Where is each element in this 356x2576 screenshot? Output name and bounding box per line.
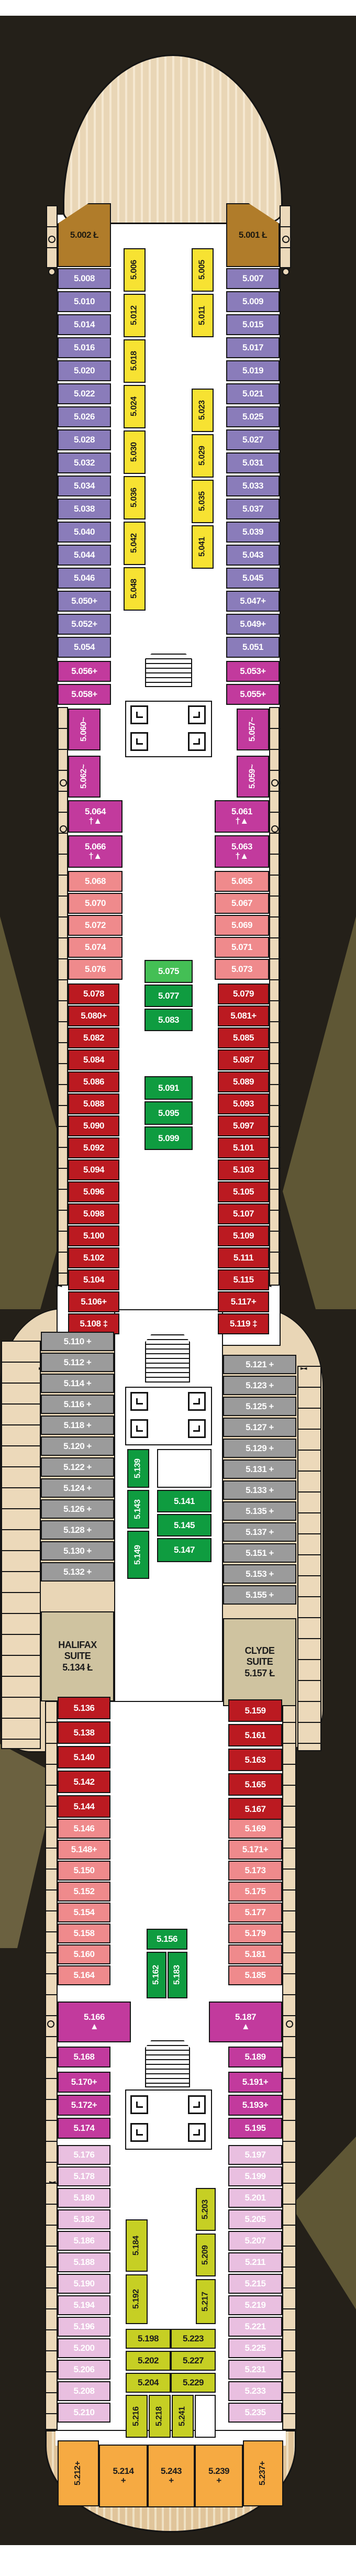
fire-zone-marker: ►◄ xyxy=(55,1283,60,1289)
cabin-5.210[interactable]: 5.210 xyxy=(58,2403,110,2423)
cabin-5.217[interactable]: 5.217 xyxy=(196,2279,216,2324)
cabin-5.091[interactable]: 5.091 xyxy=(144,1076,193,1100)
cabin-5.076[interactable]: 5.076 xyxy=(68,959,123,980)
elevator-lobby xyxy=(125,701,212,757)
cabin-5.124 +[interactable]: 5.124 + xyxy=(41,1478,114,1498)
cabin-5.180[interactable]: 5.180 xyxy=(58,2188,110,2208)
cabin-5.025[interactable]: 5.025 xyxy=(226,406,280,427)
stairs[interactable] xyxy=(145,2040,190,2087)
cabin-5.088[interactable]: 5.088 xyxy=(68,1093,119,1114)
cabin-5.229[interactable]: 5.229 xyxy=(171,2373,216,2393)
cabin-5.126 +[interactable]: 5.126 + xyxy=(41,1499,114,1519)
cabin-5.007[interactable]: 5.007 xyxy=(226,268,280,289)
cabin-5.042[interactable]: 5.042 xyxy=(124,522,146,565)
cabin-5.177[interactable]: 5.177 xyxy=(228,1903,282,1922)
suite-CLYDE[interactable]: CLYDE SUITE 5.157 Ł xyxy=(223,1618,296,1706)
cabin-5.172+[interactable]: 5.172+ xyxy=(58,2095,110,2116)
cabin-5.102[interactable]: 5.102 xyxy=(68,1247,119,1268)
deck-fitting xyxy=(282,268,290,275)
cabin-5.185[interactable]: 5.185 xyxy=(228,1965,282,1985)
cabin-5.069[interactable]: 5.069 xyxy=(215,915,269,936)
cabin-5.243[interactable]: 5.243 + xyxy=(148,2445,195,2507)
cabin-5.140[interactable]: 5.140 xyxy=(58,1746,110,1768)
cabin-5.150[interactable]: 5.150 xyxy=(58,1861,110,1881)
cabin-5.097[interactable]: 5.097 xyxy=(218,1115,269,1136)
cabin-5.201[interactable]: 5.201 xyxy=(228,2188,282,2208)
cabin-5.158[interactable]: 5.158 xyxy=(58,1923,110,1943)
cabin-5.019[interactable]: 5.019 xyxy=(226,360,280,381)
cabin-5.216[interactable]: 5.216 xyxy=(126,2395,148,2438)
elevator-icon[interactable] xyxy=(188,1419,206,1438)
cabin-5.188[interactable]: 5.188 xyxy=(58,2252,110,2272)
cabin-5.079[interactable]: 5.079 xyxy=(218,983,269,1004)
cabin-5.173[interactable]: 5.173 xyxy=(228,1861,282,1881)
cabin-5.121 +[interactable]: 5.121 + xyxy=(223,1355,296,1374)
elevator-icon[interactable] xyxy=(130,2123,148,2142)
cabin-5.111[interactable]: 5.111 xyxy=(218,1247,269,1268)
cabin-5.008[interactable]: 5.008 xyxy=(58,268,111,289)
cabin-5.023[interactable]: 5.023 xyxy=(192,389,214,432)
cabin-5.125 +[interactable]: 5.125 + xyxy=(223,1397,296,1416)
cabin-5.067[interactable]: 5.067 xyxy=(215,893,269,914)
cabin-5.202[interactable]: 5.202 xyxy=(126,2351,171,2371)
cabin-5.061[interactable]: 5.061 †▲ xyxy=(215,800,269,833)
cabin-5.094[interactable]: 5.094 xyxy=(68,1159,119,1180)
cabin-5.231[interactable]: 5.231 xyxy=(228,2360,282,2380)
cabin-5.095[interactable]: 5.095 xyxy=(144,1101,193,1125)
cabin-5.099[interactable]: 5.099 xyxy=(144,1126,193,1150)
cabin-5.191+[interactable]: 5.191+ xyxy=(228,2072,282,2093)
cabin-5.049+[interactable]: 5.049+ xyxy=(226,614,280,635)
cabin-5.162[interactable]: 5.162 xyxy=(147,1952,166,1998)
cabin-5.059~[interactable]: 5.059~ xyxy=(237,756,269,798)
cabin-5.073[interactable]: 5.073 xyxy=(215,959,269,980)
cabin-5.109[interactable]: 5.109 xyxy=(218,1225,269,1246)
cabin-5.233[interactable]: 5.233 xyxy=(228,2381,282,2401)
cabin-5.047+[interactable]: 5.047+ xyxy=(226,591,280,612)
deck-plan-page: ►◄ ►◄ ►◄ ►◄ ►◄ ►◄ 5.002 Ł5.001 Ł5.0065.0… xyxy=(0,0,356,2576)
elevator-lobby xyxy=(125,2089,212,2150)
cabin-5.144[interactable]: 5.144 xyxy=(58,1795,110,1818)
cabin-5.153 +[interactable]: 5.153 + xyxy=(223,1564,296,1584)
cabin-5.085[interactable]: 5.085 xyxy=(218,1027,269,1048)
cabin-5.006[interactable]: 5.006 xyxy=(124,248,146,292)
cabin-5.135 +[interactable]: 5.135 + xyxy=(223,1501,296,1521)
cabin-5.184[interactable]: 5.184 xyxy=(126,2219,148,2272)
cabin-5.044[interactable]: 5.044 xyxy=(58,545,111,566)
cabin-5.011[interactable]: 5.011 xyxy=(192,294,214,337)
cabin-5.115[interactable]: 5.115 xyxy=(218,1269,269,1290)
cabin-5.179[interactable]: 5.179 xyxy=(228,1923,282,1943)
deck-fitting xyxy=(48,268,55,275)
cabin-5.141[interactable]: 5.141 xyxy=(157,1490,212,1512)
cabin-5.161[interactable]: 5.161 xyxy=(228,1724,282,1746)
cabin-5.046[interactable]: 5.046 xyxy=(58,568,111,589)
cabin-5.048[interactable]: 5.048 xyxy=(124,567,146,611)
deck-fitting xyxy=(271,779,279,787)
cabin-5.132 +[interactable]: 5.132 + xyxy=(41,1562,114,1582)
cabin-5.029[interactable]: 5.029 xyxy=(192,434,214,478)
cabin-5.040[interactable]: 5.040 xyxy=(58,522,111,543)
cabin-5.133 +[interactable]: 5.133 + xyxy=(223,1480,296,1500)
cabin-5.037[interactable]: 5.037 xyxy=(226,499,280,519)
cabin-5.119 ‡[interactable]: 5.119 ‡ xyxy=(218,1313,269,1334)
deck-fitting xyxy=(60,779,67,787)
cabin-5.203[interactable]: 5.203 xyxy=(196,2188,216,2231)
deck-fitting xyxy=(48,236,55,243)
deck-fitting xyxy=(60,825,67,833)
cabin-5.106+[interactable]: 5.106+ xyxy=(68,1291,119,1312)
cabin-5.219[interactable]: 5.219 xyxy=(228,2295,282,2315)
cabin-5.016[interactable]: 5.016 xyxy=(58,337,111,358)
cabin-5.031[interactable]: 5.031 xyxy=(226,452,280,473)
cabin-5.142[interactable]: 5.142 xyxy=(58,1771,110,1793)
cabin-5.078[interactable]: 5.078 xyxy=(68,983,119,1004)
cabin-5.166[interactable]: 5.166 ▲ xyxy=(58,2002,131,2042)
cabin-5.005[interactable]: 5.005 xyxy=(192,248,214,292)
cabin-5.169[interactable]: 5.169 xyxy=(228,1819,282,1839)
elevator-icon[interactable] xyxy=(188,1392,206,1411)
cabin-5.083[interactable]: 5.083 xyxy=(144,1009,193,1031)
cabin-5.145[interactable]: 5.145 xyxy=(157,1514,212,1536)
cabin-5.151 +[interactable]: 5.151 + xyxy=(223,1543,296,1563)
cabin-5.168[interactable]: 5.168 xyxy=(58,2047,110,2068)
elevator-icon[interactable] xyxy=(130,1392,148,1411)
cabin-5.043[interactable]: 5.043 xyxy=(226,545,280,566)
cabin-5.065[interactable]: 5.065 xyxy=(215,871,269,892)
cabin-5.058+[interactable]: 5.058+ xyxy=(58,684,111,705)
cabin-5.209[interactable]: 5.209 xyxy=(196,2234,216,2276)
cabin-5.012[interactable]: 5.012 xyxy=(124,294,146,337)
cabin-5.192[interactable]: 5.192 xyxy=(126,2274,148,2324)
cabin-5.128 +[interactable]: 5.128 + xyxy=(41,1520,114,1540)
cabin-5.212+[interactable]: 5.212+ xyxy=(58,2440,99,2506)
elevator-lobby xyxy=(125,1387,212,1445)
cabin-5.053+[interactable]: 5.053+ xyxy=(226,661,280,682)
cabin-5.041[interactable]: 5.041 xyxy=(192,525,214,569)
cabin-5.148+[interactable]: 5.148+ xyxy=(58,1840,110,1860)
cabin-5.114 +[interactable]: 5.114 + xyxy=(41,1374,114,1393)
cabin-5.143[interactable]: 5.143 xyxy=(127,1490,149,1529)
cabin-5.015[interactable]: 5.015 xyxy=(226,314,280,335)
cabin-5.194[interactable]: 5.194 xyxy=(58,2295,110,2315)
cabin-5.108 ‡[interactable]: 5.108 ‡ xyxy=(68,1313,119,1334)
cabin-5.175[interactable]: 5.175 xyxy=(228,1882,282,1901)
balcony-strip xyxy=(58,707,68,1286)
cabin-5.009[interactable]: 5.009 xyxy=(226,291,280,312)
cabin-5.146[interactable]: 5.146 xyxy=(58,1819,110,1839)
cabin-5.024[interactable]: 5.024 xyxy=(124,385,146,428)
empty-room xyxy=(157,1449,212,1488)
cabin-5.021[interactable]: 5.021 xyxy=(226,383,280,404)
cabin-5.139[interactable]: 5.139 xyxy=(127,1449,149,1488)
cabin-5.138[interactable]: 5.138 xyxy=(58,1721,110,1744)
cabin-5.137 +[interactable]: 5.137 + xyxy=(223,1522,296,1542)
cabin-5.090[interactable]: 5.090 xyxy=(68,1115,119,1136)
cabin-5.189[interactable]: 5.189 xyxy=(228,2047,282,2068)
cabin-5.075[interactable]: 5.075 xyxy=(144,960,193,983)
cabin-5.237+[interactable]: 5.237+ xyxy=(243,2440,283,2506)
cabin-5.022[interactable]: 5.022 xyxy=(58,383,111,404)
cabin-5.171+[interactable]: 5.171+ xyxy=(228,1840,282,1860)
balcony-strip xyxy=(282,1701,296,2430)
cabin-5.181[interactable]: 5.181 xyxy=(228,1944,282,1964)
cabin-5.208[interactable]: 5.208 xyxy=(58,2381,110,2401)
cabin-5.086[interactable]: 5.086 xyxy=(68,1071,119,1092)
cabin-5.110 +[interactable]: 5.110 + xyxy=(41,1332,114,1351)
cabin-5.030[interactable]: 5.030 xyxy=(124,430,146,474)
elevator-icon[interactable] xyxy=(130,1419,148,1438)
cabin-5.068[interactable]: 5.068 xyxy=(68,871,123,892)
cabin-5.118 +[interactable]: 5.118 + xyxy=(41,1416,114,1435)
cabin-5.112 +[interactable]: 5.112 + xyxy=(41,1353,114,1372)
stairs[interactable] xyxy=(145,654,192,687)
cabin-5.072[interactable]: 5.072 xyxy=(68,915,123,936)
elevator-icon[interactable] xyxy=(130,705,148,724)
cabin-5.089[interactable]: 5.089 xyxy=(218,1071,269,1092)
cabin-5.082[interactable]: 5.082 xyxy=(68,1027,119,1048)
cabin-5.215[interactable]: 5.215 xyxy=(228,2274,282,2294)
stairs[interactable] xyxy=(145,1334,190,1383)
cabin-5.035[interactable]: 5.035 xyxy=(192,480,214,523)
cabin-5.038[interactable]: 5.038 xyxy=(58,499,111,519)
cabin-5.221[interactable]: 5.221 xyxy=(228,2317,282,2337)
cabin-5.206[interactable]: 5.206 xyxy=(58,2360,110,2380)
cabin-5.155 +[interactable]: 5.155 + xyxy=(223,1585,296,1605)
cabin-5.071[interactable]: 5.071 xyxy=(215,937,269,958)
cabin-5.241[interactable]: 5.241 xyxy=(172,2395,194,2438)
deck-fitting xyxy=(47,2020,54,2028)
cabin-5.080+[interactable]: 5.080+ xyxy=(68,1005,119,1026)
cabin-5.100[interactable]: 5.100 xyxy=(68,1225,119,1246)
cabin-5.120 +[interactable]: 5.120 + xyxy=(41,1436,114,1456)
cabin-5.018[interactable]: 5.018 xyxy=(124,339,146,383)
cabin-5.127 +[interactable]: 5.127 + xyxy=(223,1418,296,1437)
cabin-5.205[interactable]: 5.205 xyxy=(228,2209,282,2229)
cabin-5.239[interactable]: 5.239 + xyxy=(195,2445,243,2507)
cabin-5.174[interactable]: 5.174 xyxy=(58,2118,110,2139)
elevator-icon[interactable] xyxy=(188,2123,206,2142)
cabin-5.028[interactable]: 5.028 xyxy=(58,429,111,450)
cabin-5.093[interactable]: 5.093 xyxy=(218,1093,269,1114)
cabin-5.039[interactable]: 5.039 xyxy=(226,522,280,543)
cabin-5.207[interactable]: 5.207 xyxy=(228,2231,282,2251)
cabin-5.074[interactable]: 5.074 xyxy=(68,937,123,958)
cabin-5.045[interactable]: 5.045 xyxy=(226,568,280,589)
cabin-5.170+[interactable]: 5.170+ xyxy=(58,2072,110,2093)
cabin-5.066[interactable]: 5.066 †▲ xyxy=(68,835,123,868)
deck-fitting xyxy=(286,2020,293,2028)
cabin-5.014[interactable]: 5.014 xyxy=(58,314,111,335)
cabin-5.101[interactable]: 5.101 xyxy=(218,1137,269,1158)
cabin-5.070[interactable]: 5.070 xyxy=(68,893,123,914)
cabin-5.104[interactable]: 5.104 xyxy=(68,1269,119,1290)
cabin-5.129 +[interactable]: 5.129 + xyxy=(223,1439,296,1458)
cabin-5.227[interactable]: 5.227 xyxy=(171,2351,216,2371)
cabin-5.204[interactable]: 5.204 xyxy=(126,2373,171,2393)
cabin-5.186[interactable]: 5.186 xyxy=(58,2231,110,2251)
cabin-5.077[interactable]: 5.077 xyxy=(144,985,193,1007)
cabin-5.060~[interactable]: 5.060~ xyxy=(68,709,101,750)
cabin-5.081+[interactable]: 5.081+ xyxy=(218,1005,269,1026)
cabin-5.087[interactable]: 5.087 xyxy=(218,1049,269,1070)
balcony-strip xyxy=(297,1366,321,1751)
cabin-5.223[interactable]: 5.223 xyxy=(171,2329,216,2349)
cabin-5.149[interactable]: 5.149 xyxy=(127,1531,149,1579)
cabin-5.156[interactable]: 5.156 xyxy=(147,1929,187,1950)
cabin-5.196[interactable]: 5.196 xyxy=(58,2317,110,2337)
cabin-5.165[interactable]: 5.165 xyxy=(228,1773,282,1796)
cabin-5.176[interactable]: 5.176 xyxy=(58,2145,110,2165)
suite-HALIFAX[interactable]: HALIFAX SUITE 5.134 Ł xyxy=(41,1611,114,1701)
cabin-5.159[interactable]: 5.159 xyxy=(228,1699,282,1722)
fire-zone-marker: ►◄ xyxy=(49,2180,54,2185)
cabin-5.092[interactable]: 5.092 xyxy=(68,1137,119,1158)
elevator-icon[interactable] xyxy=(130,732,148,751)
elevator-icon[interactable] xyxy=(130,2095,148,2114)
cabin-5.178[interactable]: 5.178 xyxy=(58,2166,110,2186)
cabin-5.010[interactable]: 5.010 xyxy=(58,291,111,312)
fire-zone-marker: ►◄ xyxy=(301,1366,305,1372)
elevator-icon[interactable] xyxy=(188,705,206,724)
cabin-5.098[interactable]: 5.098 xyxy=(68,1203,119,1224)
cabin-5.199[interactable]: 5.199 xyxy=(228,2166,282,2186)
cabin-5.164[interactable]: 5.164 xyxy=(58,1965,110,1985)
cabin-5.152[interactable]: 5.152 xyxy=(58,1882,110,1901)
cabin-5.096[interactable]: 5.096 xyxy=(68,1181,119,1202)
cabin-5.136[interactable]: 5.136 xyxy=(58,1697,110,1719)
balcony-strip xyxy=(269,707,280,1286)
cabin-5.034[interactable]: 5.034 xyxy=(58,476,111,496)
cabin-5.033[interactable]: 5.033 xyxy=(226,476,280,496)
cabin-5.235[interactable]: 5.235 xyxy=(228,2403,282,2423)
cabin-5.117+[interactable]: 5.117+ xyxy=(218,1291,269,1312)
cabin-5.062~[interactable]: 5.062~ xyxy=(68,756,101,798)
cabin-5.160[interactable]: 5.160 xyxy=(58,1944,110,1964)
balcony-strip xyxy=(45,1701,58,2430)
cabin-5.225[interactable]: 5.225 xyxy=(228,2338,282,2358)
cabin-5.020[interactable]: 5.020 xyxy=(58,360,111,381)
cabin-5.052+[interactable]: 5.052+ xyxy=(58,614,111,635)
cabin-5.195[interactable]: 5.195 xyxy=(228,2118,282,2139)
cabin-5.187[interactable]: 5.187 ▲ xyxy=(209,2002,282,2042)
cabin-5.026[interactable]: 5.026 xyxy=(58,406,111,427)
cabin-5.064[interactable]: 5.064 †▲ xyxy=(68,800,123,833)
cabin-5.107[interactable]: 5.107 xyxy=(218,1203,269,1224)
empty-room xyxy=(195,2395,216,2438)
cabin-5.057~[interactable]: 5.057~ xyxy=(237,709,269,750)
cabin-5.163[interactable]: 5.163 xyxy=(228,1749,282,1771)
cabin-5.054[interactable]: 5.054 xyxy=(58,637,111,658)
cabin-5.197[interactable]: 5.197 xyxy=(228,2145,282,2165)
cabin-5.218[interactable]: 5.218 xyxy=(149,2395,171,2438)
cabin-5.147[interactable]: 5.147 xyxy=(157,1538,212,1562)
cabin-5.032[interactable]: 5.032 xyxy=(58,452,111,473)
cabin-5.050+[interactable]: 5.050+ xyxy=(58,591,111,612)
cabin-5.056+[interactable]: 5.056+ xyxy=(58,661,111,682)
cabin-5.084[interactable]: 5.084 xyxy=(68,1049,119,1070)
cabin-5.123 +[interactable]: 5.123 + xyxy=(223,1376,296,1395)
cabin-5.167[interactable]: 5.167 xyxy=(228,1798,282,1820)
cabin-5.051[interactable]: 5.051 xyxy=(226,637,280,658)
cabin-5.105[interactable]: 5.105 xyxy=(218,1181,269,1202)
cabin-5.103[interactable]: 5.103 xyxy=(218,1159,269,1180)
cabin-5.211[interactable]: 5.211 xyxy=(228,2252,282,2272)
cabin-5.214[interactable]: 5.214 + xyxy=(99,2445,148,2507)
cabin-5.183[interactable]: 5.183 xyxy=(168,1952,187,1998)
elevator-icon[interactable] xyxy=(188,732,206,751)
deck-fitting xyxy=(271,825,279,833)
cabin-5.116 +[interactable]: 5.116 + xyxy=(41,1395,114,1414)
cabin-5.131 +[interactable]: 5.131 + xyxy=(223,1460,296,1479)
cabin-5.036[interactable]: 5.036 xyxy=(124,476,146,519)
cabin-5.190[interactable]: 5.190 xyxy=(58,2274,110,2294)
cabin-5.063[interactable]: 5.063 †▲ xyxy=(215,835,269,868)
cabin-5.154[interactable]: 5.154 xyxy=(58,1903,110,1922)
cabin-5.130 +[interactable]: 5.130 + xyxy=(41,1541,114,1561)
deck-fitting xyxy=(282,236,290,243)
balcony-strip xyxy=(1,1341,41,1749)
cabin-5.017[interactable]: 5.017 xyxy=(226,337,280,358)
cabin-5.055+[interactable]: 5.055+ xyxy=(226,684,280,705)
cabin-5.193+[interactable]: 5.193+ xyxy=(228,2095,282,2116)
elevator-icon[interactable] xyxy=(188,2095,206,2114)
cabin-5.027[interactable]: 5.027 xyxy=(226,429,280,450)
cabin-5.200[interactable]: 5.200 xyxy=(58,2338,110,2358)
cabin-5.198[interactable]: 5.198 xyxy=(126,2329,171,2349)
cabin-5.182[interactable]: 5.182 xyxy=(58,2209,110,2229)
cabin-5.122 +[interactable]: 5.122 + xyxy=(41,1457,114,1477)
